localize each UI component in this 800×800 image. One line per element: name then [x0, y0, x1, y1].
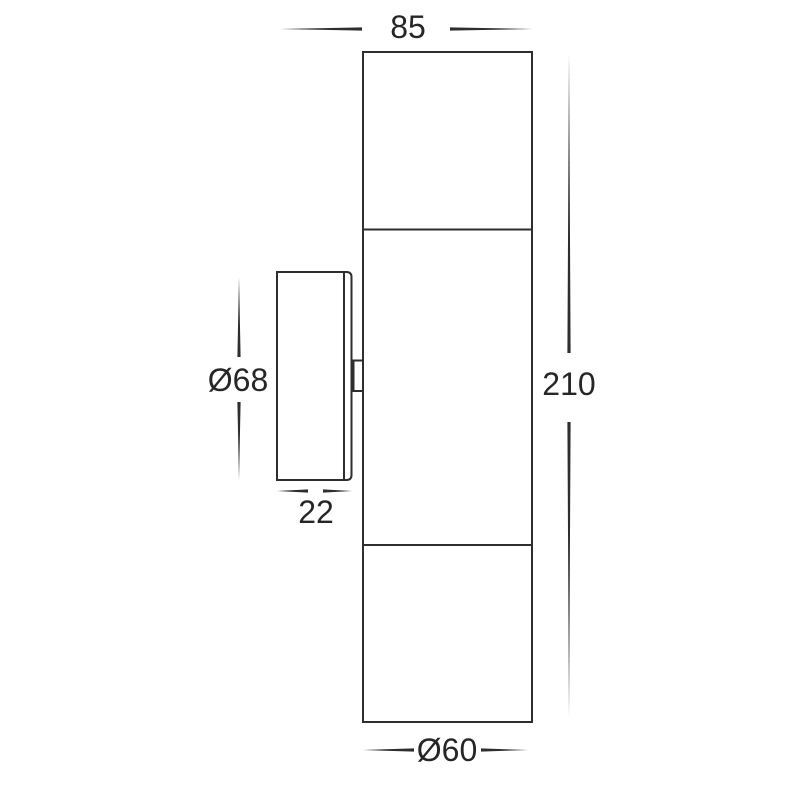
dim-60-left-stroke: [363, 748, 414, 751]
dim-85-right-stroke: [450, 27, 533, 30]
dimension-label-plate-depth: 22: [298, 496, 334, 528]
dim-210-top-stroke: [567, 53, 570, 353]
mounting-plate-side-view: [277, 272, 363, 480]
dim-68-top-stroke: [237, 277, 240, 357]
drawing-linework: [0, 0, 800, 800]
dimension-label-body-width: 85: [390, 11, 426, 43]
plate-outline: [277, 272, 352, 480]
dimension-label-plate-diameter: Ø68: [208, 364, 268, 396]
technical-drawing-page: 85 210 Ø68 22 Ø60: [0, 0, 800, 800]
dim-22-right-stroke: [323, 489, 352, 492]
dimension-label-tube-diameter: Ø60: [417, 734, 477, 766]
dim-210-bottom-stroke: [567, 422, 570, 718]
dim-60-right-stroke: [481, 748, 528, 751]
body-outline: [363, 52, 532, 722]
dimension-22-lines: [277, 489, 352, 492]
dim-85-left-stroke: [280, 27, 362, 30]
dim-22-left-stroke: [277, 489, 308, 492]
plate-tab: [354, 361, 364, 392]
dim-68-bottom-stroke: [237, 402, 240, 480]
fixture-body-front-view: [363, 52, 532, 722]
dimension-label-body-height: 210: [542, 368, 595, 400]
